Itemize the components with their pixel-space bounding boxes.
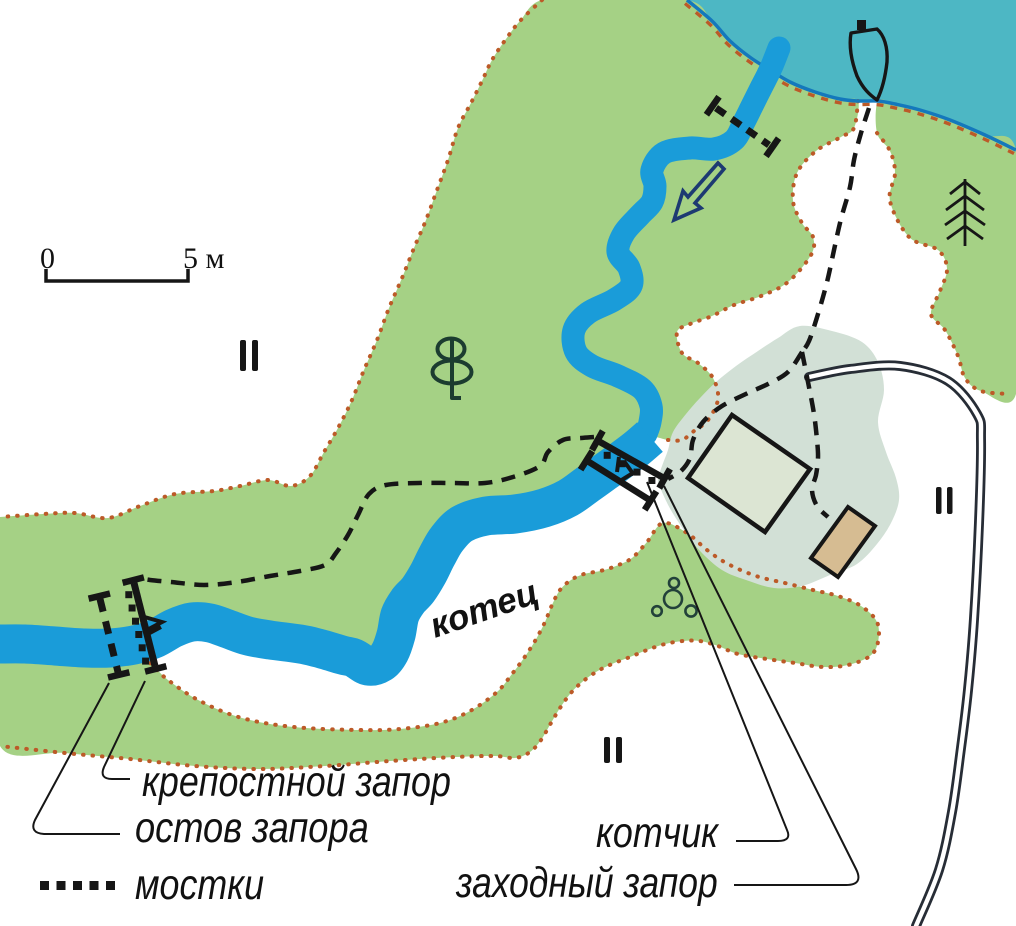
svg-text:крепостной запор: крепостной запор [142,758,451,806]
svg-text:5 м: 5 м [183,242,225,275]
svg-text:мостки: мостки [135,861,264,909]
svg-text:0: 0 [40,242,55,275]
svg-text:заходный запор: заходный запор [455,859,718,907]
svg-text:остов запора: остов запора [135,804,369,852]
svg-text:котчик: котчик [596,809,719,857]
